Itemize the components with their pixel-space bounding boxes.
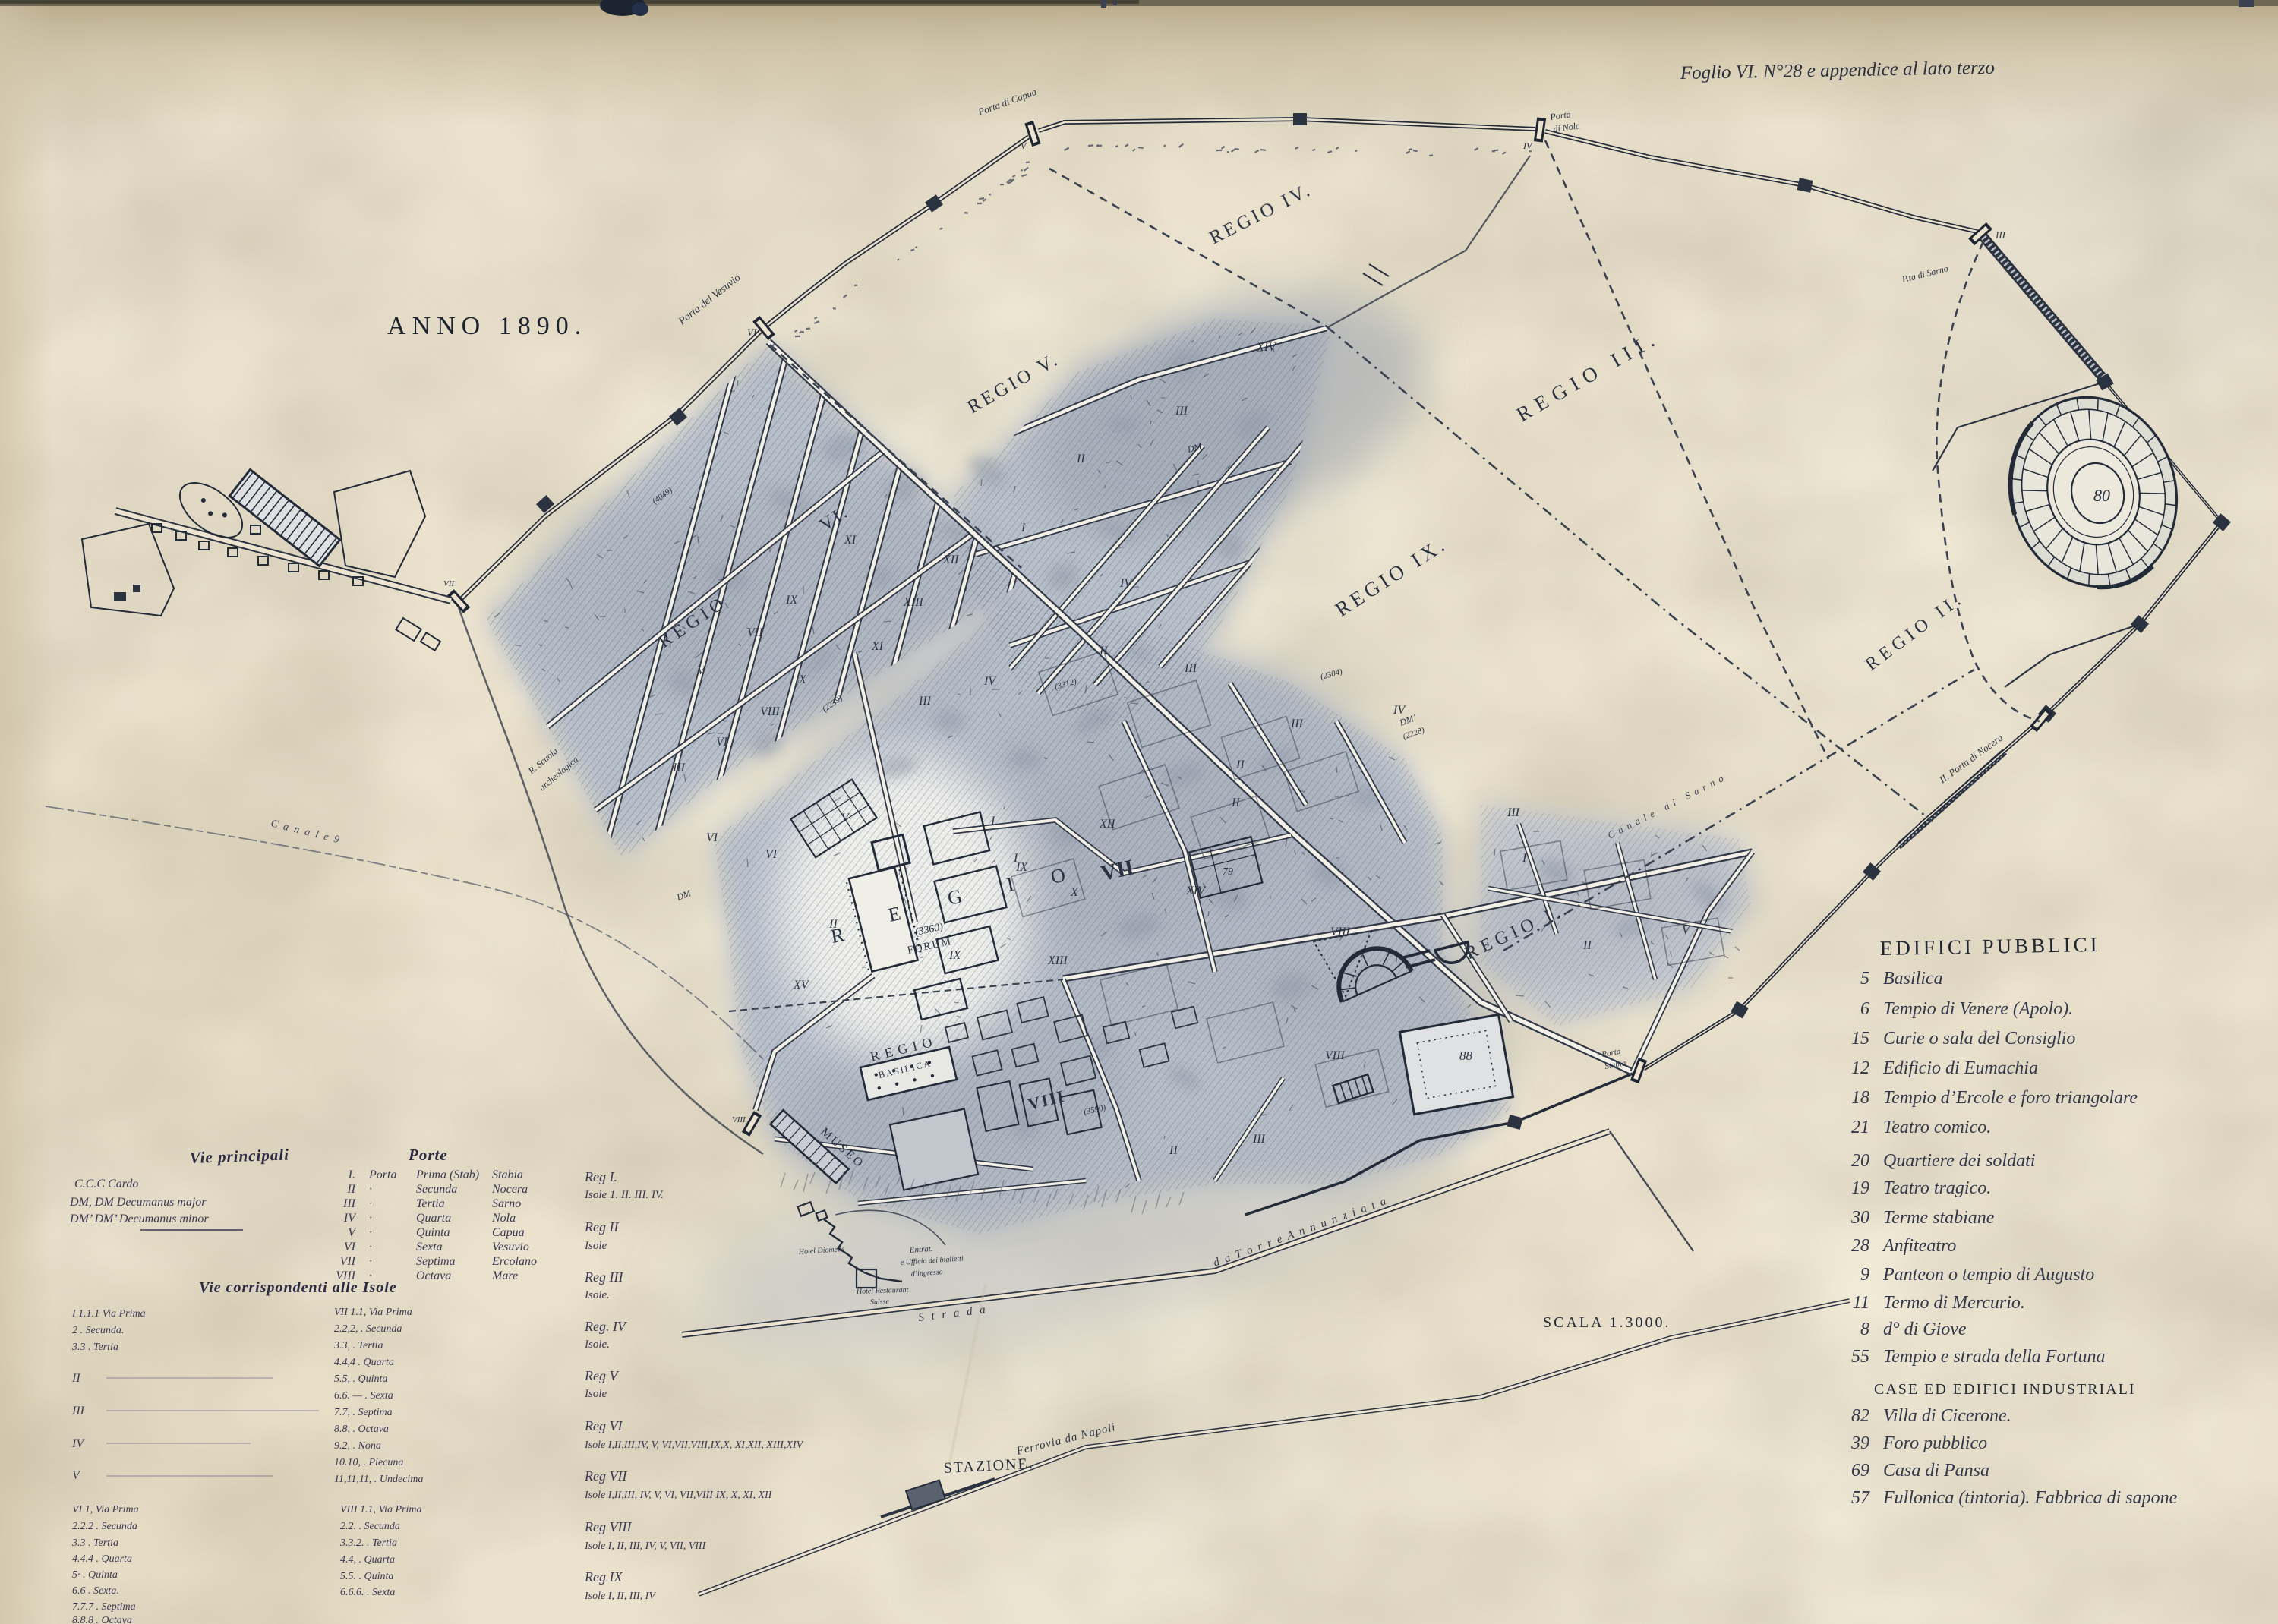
svg-text:Foro pubblico: Foro pubblico xyxy=(1882,1433,1987,1453)
svg-text:6.6.6. . Sexta: 6.6.6. . Sexta xyxy=(340,1587,395,1598)
svg-text:Fullonica (tintoria). Fabbrica: Fullonica (tintoria). Fabbrica di sapone xyxy=(1882,1488,2178,1508)
svg-text:Tertia: Tertia xyxy=(416,1197,445,1210)
svg-text:VI: VI xyxy=(706,831,718,844)
svg-text:Isole: Isole xyxy=(584,1240,607,1252)
svg-text:DM, DM Decumanus major: DM, DM Decumanus major xyxy=(69,1196,207,1209)
svg-text:Entrat.: Entrat. xyxy=(908,1244,933,1255)
svg-text:III: III xyxy=(672,762,686,774)
svg-text:4.4,4 . Quarta: 4.4,4 . Quarta xyxy=(334,1357,394,1368)
svg-text:19: 19 xyxy=(1851,1178,1869,1198)
svg-text:IV: IV xyxy=(1393,704,1406,717)
svg-text:EDIFICI PUBBLICI: EDIFICI PUBBLICI xyxy=(1880,933,2100,960)
svg-text:Isole I, II, III, IV, V, VII,: Isole I, II, III, IV, V, VII, VIII xyxy=(584,1540,707,1552)
svg-text:III: III xyxy=(1290,717,1304,730)
svg-text:Prima (Stab): Prima (Stab) xyxy=(415,1168,479,1181)
svg-text:88: 88 xyxy=(1459,1049,1473,1063)
svg-text:Reg VII: Reg VII xyxy=(584,1468,627,1484)
svg-text:8: 8 xyxy=(1860,1320,1869,1339)
svg-text:IX: IX xyxy=(785,594,798,607)
svg-text:Reg I.: Reg I. xyxy=(584,1169,617,1184)
svg-text:XIII: XIII xyxy=(1047,954,1068,967)
svg-text:·: · xyxy=(369,1212,372,1225)
svg-text:II: II xyxy=(1099,645,1108,657)
svg-text:·: · xyxy=(369,1241,372,1253)
svg-text:Sarno: Sarno xyxy=(492,1197,521,1210)
svg-text:6.6 . Sexta.: 6.6 . Sexta. xyxy=(72,1585,119,1597)
svg-text:IX: IX xyxy=(1015,861,1028,874)
svg-text:X: X xyxy=(798,673,807,686)
svg-text:4.4.4 . Quarta: 4.4.4 . Quarta xyxy=(72,1553,132,1565)
svg-text:Teatro tragico.: Teatro tragico. xyxy=(1883,1178,1991,1198)
svg-text:III: III xyxy=(1507,806,1520,819)
svg-text:30: 30 xyxy=(1850,1208,1869,1228)
svg-text:VI: VI xyxy=(765,848,778,861)
svg-text:XII: XII xyxy=(1099,818,1115,831)
svg-text:VI: VI xyxy=(344,1241,356,1253)
svg-text:5: 5 xyxy=(1860,969,1869,989)
svg-text:·: · xyxy=(369,1183,372,1196)
svg-text:Tempio d’Ercole e foro triango: Tempio d’Ercole e foro triangolare xyxy=(1883,1088,2138,1108)
svg-text:VII: VII xyxy=(340,1255,356,1268)
svg-text:Mare: Mare xyxy=(491,1269,518,1282)
svg-text:7.7, . Septima: 7.7, . Septima xyxy=(334,1407,393,1418)
svg-text:11: 11 xyxy=(1853,1293,1869,1313)
svg-text:Reg V: Reg V xyxy=(584,1368,619,1383)
svg-text:7.7.7 . Septima: 7.7.7 . Septima xyxy=(72,1601,136,1613)
svg-text:Teatro comico.: Teatro comico. xyxy=(1883,1118,1991,1137)
svg-text:3.3 . Tertia: 3.3 . Tertia xyxy=(71,1342,118,1353)
svg-text:Tempio e strada della Fortuna: Tempio e strada della Fortuna xyxy=(1883,1347,2105,1367)
svg-text:Sexta: Sexta xyxy=(416,1241,443,1253)
svg-text:2.2. . Secunda: 2.2. . Secunda xyxy=(340,1521,400,1532)
svg-text:XII: XII xyxy=(942,553,959,566)
svg-text:Isole I,II,III,IV, V, VI,VII,V: Isole I,II,III,IV, V, VI,VII,VIII,IX,X, … xyxy=(584,1440,804,1451)
svg-text:Nola: Nola xyxy=(491,1212,516,1225)
svg-text:d° di Giove: d° di Giove xyxy=(1883,1320,1967,1339)
svg-text:Isole I, II, III, IV: Isole I, II, III, IV xyxy=(584,1591,656,1602)
svg-text:II: II xyxy=(1076,453,1085,465)
svg-text:XI: XI xyxy=(844,534,857,547)
svg-text:Reg III: Reg III xyxy=(584,1269,623,1285)
svg-text:VII: VII xyxy=(443,579,455,588)
svg-text:SCALA 1.3000.: SCALA 1.3000. xyxy=(1543,1314,1671,1331)
svg-text:II: II xyxy=(71,1372,80,1385)
svg-text:Stabia: Stabia xyxy=(492,1168,523,1181)
svg-text:VI: VI xyxy=(747,326,757,338)
svg-text:12: 12 xyxy=(1851,1058,1869,1078)
svg-text:8.8.8 . Octava: 8.8.8 . Octava xyxy=(72,1615,132,1624)
svg-text:II: II xyxy=(1235,758,1245,771)
svg-text:Nocera: Nocera xyxy=(491,1183,528,1196)
svg-text:III: III xyxy=(71,1405,85,1417)
svg-text:6.6. — . Sexta: 6.6. — . Sexta xyxy=(334,1390,393,1402)
svg-text:3.3.2. . Tertia: 3.3.2. . Tertia xyxy=(339,1537,397,1549)
svg-text:5· . Quinta: 5· . Quinta xyxy=(72,1569,118,1581)
svg-text:XIV: XIV xyxy=(1256,341,1277,354)
svg-text:I: I xyxy=(990,815,995,828)
svg-text:2 . Secunda.: 2 . Secunda. xyxy=(72,1325,124,1336)
svg-text:VIII: VIII xyxy=(1330,926,1350,938)
svg-text:5.5. . Quinta: 5.5. . Quinta xyxy=(340,1571,393,1582)
svg-text:IV: IV xyxy=(343,1212,357,1225)
svg-text:CASE ED EDIFICI INDUSTRIALI: CASE ED EDIFICI INDUSTRIALI xyxy=(1874,1381,2136,1398)
svg-text:II: II xyxy=(828,918,838,931)
svg-text:VI 1, Via Prima: VI 1, Via Prima xyxy=(72,1504,139,1515)
svg-text:Quarta: Quarta xyxy=(416,1212,451,1225)
svg-text:C.C.C Cardo: C.C.C Cardo xyxy=(74,1178,138,1190)
svg-text:69: 69 xyxy=(1851,1461,1869,1481)
svg-text:VII 1.1, Via Prima: VII 1.1, Via Prima xyxy=(334,1307,412,1318)
svg-text:10.10, . Piecuna: 10.10, . Piecuna xyxy=(334,1457,403,1468)
svg-text:6: 6 xyxy=(1860,999,1869,1019)
svg-text:Vie corrispondenti alle Isole: Vie corrispondenti alle Isole xyxy=(199,1279,397,1296)
svg-text:IV: IV xyxy=(983,675,997,688)
svg-text:Reg. IV: Reg. IV xyxy=(584,1319,627,1334)
svg-text:Terme stabiane: Terme stabiane xyxy=(1883,1208,1995,1228)
svg-text:82: 82 xyxy=(1851,1406,1869,1426)
svg-text:4.4, . Quarta: 4.4, . Quarta xyxy=(340,1554,395,1566)
svg-text:DM’ DM’ Decumanus minor: DM’ DM’ Decumanus minor xyxy=(69,1212,209,1225)
svg-text:2.2,2, . Secunda: 2.2,2, . Secunda xyxy=(334,1323,402,1335)
svg-text:Isole 1. II. III. IV.: Isole 1. II. III. IV. xyxy=(584,1189,664,1201)
svg-text:Reg VIII: Reg VIII xyxy=(584,1519,632,1534)
svg-text:Termo di Mercurio.: Termo di Mercurio. xyxy=(1883,1293,2025,1313)
svg-text:8.8, . Octava: 8.8, . Octava xyxy=(334,1424,389,1435)
svg-text:20: 20 xyxy=(1851,1151,1869,1171)
svg-text:Basilica: Basilica xyxy=(1883,969,1943,989)
svg-text:Reg VI: Reg VI xyxy=(584,1418,623,1433)
svg-text:Suisse: Suisse xyxy=(870,1298,890,1307)
svg-text:3.3, . Tertia: 3.3, . Tertia xyxy=(333,1340,383,1351)
svg-text:5.5, . Quinta: 5.5, . Quinta xyxy=(334,1373,387,1385)
svg-text:VIII 1.1, Via Prima: VIII 1.1, Via Prima xyxy=(340,1504,421,1515)
svg-text:II: II xyxy=(1169,1144,1178,1157)
svg-text:79: 79 xyxy=(1223,866,1233,878)
svg-text:XIV: XIV xyxy=(1185,885,1207,897)
svg-text:II: II xyxy=(1582,939,1592,952)
svg-text:ANNO 1890.: ANNO 1890. xyxy=(387,312,587,340)
svg-text:I.: I. xyxy=(348,1168,355,1181)
svg-text:Porte: Porte xyxy=(408,1146,448,1164)
svg-text:Porta: Porta xyxy=(368,1168,396,1181)
svg-text:57: 57 xyxy=(1851,1488,1870,1508)
svg-text:·: · xyxy=(369,1197,372,1210)
svg-text:III: III xyxy=(1252,1133,1266,1146)
svg-text:X: X xyxy=(1070,886,1079,899)
svg-text:Isole: Isole xyxy=(584,1388,607,1400)
svg-text:Quinta: Quinta xyxy=(416,1226,450,1239)
svg-text:IV: IV xyxy=(71,1437,85,1450)
svg-text:15: 15 xyxy=(1851,1029,1869,1049)
svg-text:XI: XI xyxy=(871,640,884,653)
svg-text:I: I xyxy=(1522,852,1527,865)
svg-text:XIII: XIII xyxy=(903,596,923,609)
svg-text:Tempio di Venere (Apolo).: Tempio di Venere (Apolo). xyxy=(1883,999,2073,1019)
svg-text:Octava: Octava xyxy=(416,1269,451,1282)
svg-text:2.2.2 . Secunda: 2.2.2 . Secunda xyxy=(72,1521,137,1532)
svg-text:Quartiere dei soldati: Quartiere dei soldati xyxy=(1883,1151,2035,1171)
svg-text:28: 28 xyxy=(1851,1236,1869,1256)
svg-text:Isole.: Isole. xyxy=(584,1339,610,1351)
svg-text:III: III xyxy=(918,695,932,708)
svg-text:III: III xyxy=(342,1197,356,1210)
svg-text:VIII: VIII xyxy=(732,1115,746,1124)
svg-text:3.3 . Tertia: 3.3 . Tertia xyxy=(71,1537,118,1549)
svg-text:Septima: Septima xyxy=(416,1255,456,1268)
svg-text:Panteon o tempio di Augusto: Panteon o tempio di Augusto xyxy=(1882,1265,2094,1285)
svg-text:II: II xyxy=(346,1183,355,1196)
svg-text:21: 21 xyxy=(1851,1118,1869,1137)
svg-text:Isole I,II,III, IV, V, VI, VII: Isole I,II,III, IV, V, VI, VII,VIII IX, … xyxy=(584,1490,773,1501)
svg-text:XV: XV xyxy=(793,979,810,992)
svg-text:III: III xyxy=(1184,662,1197,675)
svg-text:Reg II: Reg II xyxy=(584,1219,619,1235)
svg-text:Capua: Capua xyxy=(492,1226,525,1239)
svg-text:11,11,11, . Undecima: 11,11,11, . Undecima xyxy=(334,1474,423,1485)
svg-text:·: · xyxy=(369,1226,372,1239)
svg-text:I: I xyxy=(1021,522,1026,535)
svg-text:III: III xyxy=(1995,229,2006,241)
svg-text:55: 55 xyxy=(1851,1347,1869,1367)
svg-text:VI: VI xyxy=(716,736,728,749)
svg-text:II: II xyxy=(1231,796,1240,809)
svg-text:IV: IV xyxy=(1522,140,1533,151)
svg-text:·: · xyxy=(369,1255,372,1268)
svg-text:Anfiteatro: Anfiteatro xyxy=(1882,1236,1956,1256)
svg-text:I 1.1.1 Via Prima: I 1.1.1 Via Prima xyxy=(71,1308,146,1320)
svg-text:9.2, . Nona: 9.2, . Nona xyxy=(334,1440,381,1452)
svg-text:Casa di Pansa: Casa di Pansa xyxy=(1883,1461,1989,1481)
svg-text:IX: IX xyxy=(948,949,961,962)
svg-text:VIII: VIII xyxy=(760,705,780,718)
svg-text:9: 9 xyxy=(1860,1265,1869,1285)
svg-text:Ercolano: Ercolano xyxy=(491,1255,537,1268)
svg-text:IV: IV xyxy=(1119,577,1133,590)
svg-text:III: III xyxy=(1175,405,1188,418)
svg-text:VIII: VIII xyxy=(1325,1049,1345,1062)
svg-text:Reg IX: Reg IX xyxy=(584,1569,623,1585)
svg-text:VII: VII xyxy=(747,626,763,639)
svg-text:Isole.: Isole. xyxy=(584,1289,610,1301)
svg-text:Villa di Cicerone.: Villa di Cicerone. xyxy=(1883,1406,2011,1426)
svg-text:Edificio di Eumachia: Edificio di Eumachia xyxy=(1882,1058,2038,1078)
svg-text:18: 18 xyxy=(1851,1088,1869,1108)
svg-text:Secunda: Secunda xyxy=(416,1183,457,1196)
svg-text:Curie o sala del Consiglio: Curie o sala del Consiglio xyxy=(1883,1029,2075,1049)
svg-text:Vie principali: Vie principali xyxy=(189,1145,289,1167)
svg-text:39: 39 xyxy=(1850,1433,1869,1453)
svg-text:Vesuvio: Vesuvio xyxy=(492,1241,529,1253)
svg-text:80: 80 xyxy=(2093,486,2110,505)
